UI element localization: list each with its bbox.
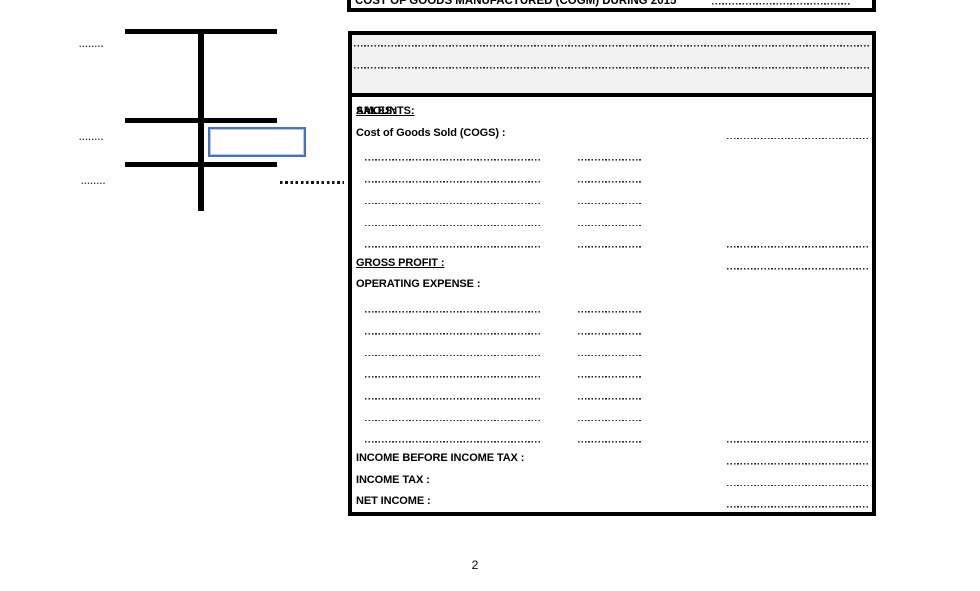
cogs-amount-blank[interactable] bbox=[727, 137, 868, 139]
income-before-tax-row: INCOME BEFORE INCOME TAX : bbox=[352, 447, 872, 469]
detail-amount-blank[interactable] bbox=[578, 224, 642, 226]
detail-amount-blank[interactable] bbox=[578, 398, 642, 400]
document-page: ........ ........ ........ COST OF GOODS… bbox=[0, 0, 980, 591]
detail-description-blank[interactable] bbox=[365, 246, 540, 248]
detail-amount-blank[interactable] bbox=[578, 202, 642, 204]
net-income-label: NET INCOME : bbox=[356, 495, 431, 507]
cogm-title: COST OF GOODS MANUFACTURED (COGM) DURING… bbox=[355, 0, 676, 7]
header-blank-line-1[interactable] bbox=[354, 45, 870, 47]
detail-amount-blank[interactable] bbox=[578, 419, 642, 421]
cogs-row: Cost of Goods Sold (COGS) : bbox=[352, 122, 872, 144]
amounts-header: AMOUNTS: bbox=[356, 105, 414, 117]
blue-text-box-shape[interactable] bbox=[208, 127, 306, 157]
detail-amount-blank[interactable] bbox=[578, 181, 642, 183]
t-account-label-blank-1: ........ bbox=[79, 39, 104, 49]
opex-detail-row bbox=[352, 425, 872, 447]
opex-detail-row bbox=[352, 295, 872, 317]
t-account-label-blank-3: ........ bbox=[81, 176, 106, 186]
opex-total-amount-blank[interactable] bbox=[727, 441, 868, 443]
cogs-detail-row bbox=[352, 230, 872, 252]
cogm-amount-blank[interactable] bbox=[712, 3, 850, 5]
statement-header-band bbox=[352, 35, 872, 97]
opex-detail-row bbox=[352, 382, 872, 404]
dotted-leader-blank[interactable] bbox=[280, 181, 344, 184]
detail-description-blank[interactable] bbox=[365, 181, 540, 183]
detail-amount-blank[interactable] bbox=[578, 376, 642, 378]
cogs-detail-row bbox=[352, 208, 872, 230]
net-income-amount-blank[interactable] bbox=[727, 506, 868, 508]
income-tax-label: INCOME TAX : bbox=[356, 474, 430, 486]
income-tax-amount-blank[interactable] bbox=[727, 484, 868, 486]
detail-description-blank[interactable] bbox=[365, 224, 540, 226]
cogs-total-amount-blank[interactable] bbox=[727, 246, 868, 248]
header-blank-line-2[interactable] bbox=[354, 67, 870, 69]
gross-profit-label: GROSS PROFIT : bbox=[356, 257, 444, 269]
detail-description-blank[interactable] bbox=[365, 441, 540, 443]
cogs-detail-row bbox=[352, 143, 872, 165]
gross-profit-amount-blank[interactable] bbox=[727, 268, 868, 270]
detail-description-blank[interactable] bbox=[365, 311, 540, 313]
cogs-detail-row bbox=[352, 187, 872, 209]
gross-profit-row: GROSS PROFIT : bbox=[352, 252, 872, 274]
opex-detail-row bbox=[352, 339, 872, 361]
detail-amount-blank[interactable] bbox=[578, 333, 642, 335]
income-before-tax-amount-blank[interactable] bbox=[727, 463, 868, 465]
detail-description-blank[interactable] bbox=[365, 398, 540, 400]
detail-description-blank[interactable] bbox=[365, 159, 540, 161]
opex-detail-row bbox=[352, 404, 872, 426]
net-income-row: NET INCOME : bbox=[352, 490, 872, 512]
operating-expense-label: OPERATING EXPENSE : bbox=[356, 278, 480, 290]
t-account-middle-bar bbox=[125, 118, 277, 123]
statement-rows: SALES: AMOUNTS: Cost of Goods Sold (COGS… bbox=[352, 100, 872, 512]
t-account-bottom-bar bbox=[125, 162, 277, 167]
opex-detail-row bbox=[352, 317, 872, 339]
detail-amount-blank[interactable] bbox=[578, 311, 642, 313]
page-number: 2 bbox=[0, 558, 950, 572]
detail-amount-blank[interactable] bbox=[578, 441, 642, 443]
detail-description-blank[interactable] bbox=[365, 202, 540, 204]
detail-description-blank[interactable] bbox=[365, 354, 540, 356]
columns-header-row: SALES: AMOUNTS: bbox=[352, 100, 872, 122]
detail-amount-blank[interactable] bbox=[578, 354, 642, 356]
cogs-detail-row bbox=[352, 165, 872, 187]
income-statement-box: SALES: AMOUNTS: Cost of Goods Sold (COGS… bbox=[348, 31, 876, 516]
cogs-label: Cost of Goods Sold (COGS) : bbox=[356, 127, 505, 139]
t-account-label-blank-2: ........ bbox=[79, 132, 104, 142]
income-tax-row: INCOME TAX : bbox=[352, 469, 872, 491]
operating-expense-row: OPERATING EXPENSE : bbox=[352, 274, 872, 296]
cogm-title-box: COST OF GOODS MANUFACTURED (COGM) DURING… bbox=[347, 0, 876, 12]
detail-amount-blank[interactable] bbox=[578, 246, 642, 248]
detail-amount-blank[interactable] bbox=[578, 159, 642, 161]
detail-description-blank[interactable] bbox=[365, 376, 540, 378]
detail-description-blank[interactable] bbox=[365, 333, 540, 335]
opex-detail-row bbox=[352, 360, 872, 382]
income-before-tax-label: INCOME BEFORE INCOME TAX : bbox=[356, 452, 524, 464]
detail-description-blank[interactable] bbox=[365, 419, 540, 421]
